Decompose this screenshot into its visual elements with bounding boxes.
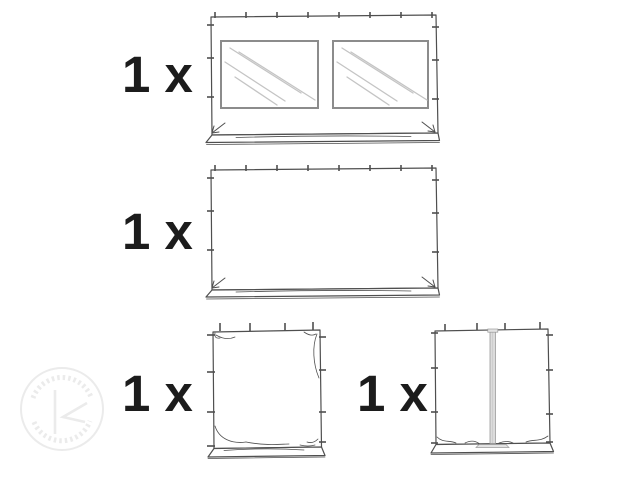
sidewall-two-windows-icon [206, 11, 440, 149]
quantity-label: 1 x [122, 49, 193, 100]
watermark-k-mark [55, 390, 87, 434]
panel-body [211, 168, 438, 290]
sidewall-half-plain-icon [204, 318, 328, 460]
panel-bottom-flap [206, 288, 440, 297]
sidewall-zipper-door-icon [429, 318, 556, 458]
quantity-label: 1 x [122, 206, 193, 257]
sidewall-plain-icon [206, 162, 440, 302]
panel-body [213, 330, 322, 449]
quantity-label: 1 x [357, 368, 428, 419]
quantity-label: 1 x [122, 368, 193, 419]
tent-parts-diagram: 1 x 1 x [0, 0, 639, 479]
watermark-logo-icon [18, 364, 106, 454]
window-right [333, 41, 428, 108]
watermark-arc-text [33, 377, 91, 440]
window-left [221, 41, 318, 108]
